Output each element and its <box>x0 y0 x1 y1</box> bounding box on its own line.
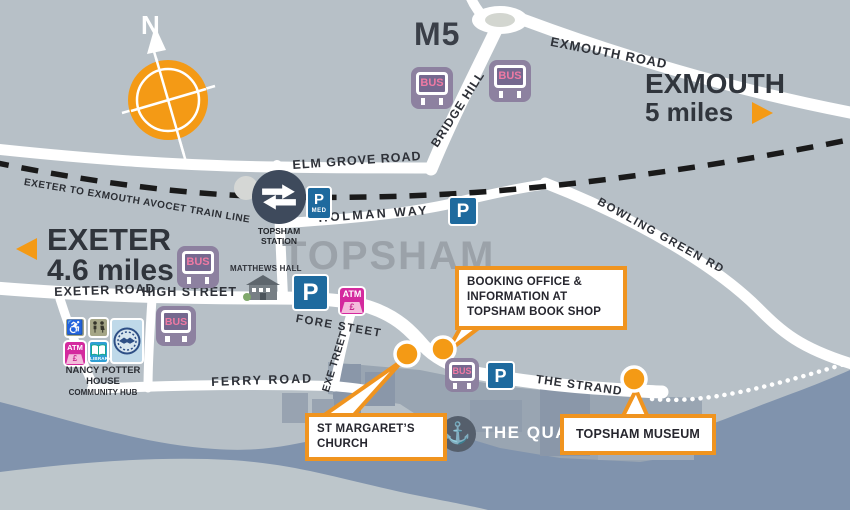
booking-office-line3: TOPSHAM BOOK SHOP <box>467 305 615 320</box>
station-label: TOPSHAM STATION <box>251 227 307 247</box>
anchor-glyph: ⚓ <box>445 422 471 446</box>
church-line2: CHURCH <box>317 437 435 452</box>
bus-stop-high-street-icon: BUS <box>177 246 219 288</box>
motorway-label: M5 <box>414 16 460 53</box>
toilets-icon <box>88 317 109 338</box>
national-rail-double-arrow <box>260 184 298 210</box>
bus-label: BUS <box>186 256 209 268</box>
community-hub-emblem <box>112 320 142 362</box>
topsham-town-map: N M5 TOPSHAM EXMOUTH 5 miles EXETER 4.6 … <box>0 0 850 510</box>
museum-line1: TOPSHAM MUSEUM <box>572 426 704 443</box>
bus-label: BUS <box>420 77 443 89</box>
compass-north-label: N <box>141 10 160 41</box>
topsham-museum-callout: TOPSHAM MUSEUM <box>560 414 716 455</box>
bus-label: BUS <box>498 70 521 82</box>
parking-holman-icon: P <box>448 196 478 226</box>
road-mid-lane <box>148 299 152 388</box>
exmouth-name: EXMOUTH <box>645 70 785 99</box>
atm-label: ATM <box>65 343 85 352</box>
library-label: LIBRARY <box>90 356 107 361</box>
wheelchair-glyph: ♿ <box>66 319 83 336</box>
atm-label: ATM <box>340 289 364 299</box>
parking-letter: P <box>494 367 506 385</box>
exeter-name: EXETER <box>47 224 174 256</box>
bus-stop-strand-icon: BUS <box>445 358 479 392</box>
matthews-hall-building-icon <box>243 272 283 302</box>
bus-label: BUS <box>165 316 187 328</box>
booking-office-line2: INFORMATION AT <box>467 290 615 305</box>
atm-pound-symbol: £ <box>73 354 77 363</box>
roundabout-island <box>485 13 515 27</box>
bus-stop-fore-street-icon: BUS <box>156 306 196 346</box>
parking-med-icon: P MED <box>306 186 332 220</box>
nancy-potter-house-label: NANCY POTTER HOUSE COMMUNITY HUB <box>58 366 148 397</box>
compass-rose <box>122 26 215 162</box>
bus-label: BUS <box>452 366 471 376</box>
bus-stop-bridge-hill-west-icon: BUS <box>411 67 453 109</box>
booking-office-line1: BOOKING OFFICE & <box>467 275 615 290</box>
parking-letter: P <box>302 281 318 305</box>
st-margarets-church-callout: ST MARGARET’S CHURCH <box>305 413 447 461</box>
atm-nancy-potter-icon: ATM £ <box>63 340 87 367</box>
parking-med-label: MED <box>312 208 327 214</box>
national-rail-icon <box>252 170 306 224</box>
parking-letter: P <box>314 192 324 207</box>
wheelchair-access-icon: ♿ <box>64 317 86 338</box>
church-line1: ST MARGARET’S <box>317 422 435 437</box>
parking-fore-street-icon: P <box>292 274 329 311</box>
library-icon: LIBRARY <box>88 340 109 364</box>
bus-stop-bridge-hill-east-icon: BUS <box>489 60 531 102</box>
nancy-potter-line2: HOUSE <box>58 377 148 388</box>
exmouth-direction-arrow-icon <box>752 102 773 124</box>
toilets-glyph <box>91 321 106 334</box>
community-hub-logo-icon <box>110 318 144 364</box>
parking-strand-icon: P <box>486 361 515 390</box>
booking-office-callout: BOOKING OFFICE & INFORMATION AT TOPSHAM … <box>455 266 627 330</box>
museum-poi-dot <box>622 367 646 391</box>
parking-letter: P <box>457 202 470 221</box>
exeter-direction-arrow-icon <box>16 238 37 260</box>
church-poi-dot <box>395 342 419 366</box>
atm-pound-symbol: £ <box>349 302 354 312</box>
nancy-potter-line3: COMMUNITY HUB <box>58 388 148 397</box>
atm-fore-street-icon: ATM £ <box>338 286 366 316</box>
exeter-destination: EXETER 4.6 miles <box>47 224 174 286</box>
